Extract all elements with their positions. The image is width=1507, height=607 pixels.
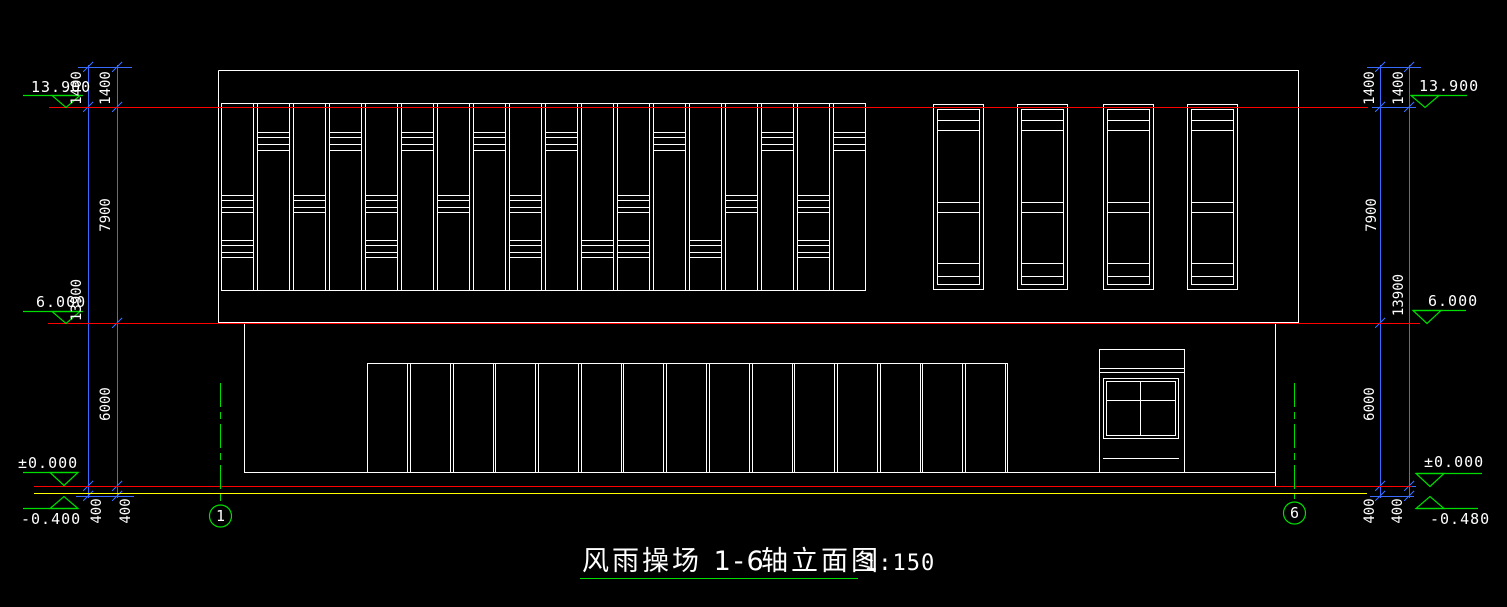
elevation-symbol-right-0000 xyxy=(1416,474,1482,487)
dim-extension-lines xyxy=(60,68,1421,497)
window-unit xyxy=(257,104,290,291)
axis-grid xyxy=(210,383,1306,527)
cad-elevation-canvas: 13.900 6.000 ±0.000 -0.400 13.900 6.000 … xyxy=(0,0,1507,607)
window-unit xyxy=(617,104,650,291)
entrance-door-assembly xyxy=(1099,350,1185,473)
glazing-panel xyxy=(582,364,622,473)
elevation-value: 13.900 xyxy=(1419,77,1479,95)
drawing-title: 风雨操场 1-6 轴立面图 1:150 xyxy=(580,546,935,579)
title-name: 风雨操场 1-6 xyxy=(582,546,767,577)
upper-window xyxy=(934,105,984,290)
elevation-symbol-left-0000 xyxy=(23,473,78,486)
window-unit xyxy=(689,104,722,291)
dim-value: 1400 xyxy=(98,71,114,105)
upper-window xyxy=(1188,105,1238,290)
glazing-panel xyxy=(795,364,835,473)
glazing-panel xyxy=(710,364,750,473)
axis-number-1: 1 xyxy=(216,507,225,525)
dim-value: 400 xyxy=(1390,498,1406,523)
dim-value: 1400 xyxy=(1362,71,1378,105)
glazing-panel xyxy=(923,364,963,473)
dim-value: 1400 xyxy=(69,71,85,105)
glazing-panel xyxy=(881,364,921,473)
window-unit xyxy=(725,104,758,291)
upper-window-band-frame xyxy=(221,104,865,291)
upper-window-band xyxy=(221,104,866,291)
elevation-value: ±0.000 xyxy=(18,454,78,472)
glazing-panel xyxy=(454,364,494,473)
lower-glazing-band-top xyxy=(367,363,1008,472)
glazing-panel xyxy=(411,364,451,473)
dim-value: 400 xyxy=(1362,498,1378,523)
window-unit xyxy=(293,104,326,291)
dim-value: 400 xyxy=(118,498,134,523)
elevation-symbol-right-6000 xyxy=(1413,311,1466,324)
glazing-panel xyxy=(966,364,1006,473)
elevation-labels: 13.900 6.000 ±0.000 -0.400 13.900 6.000 … xyxy=(18,77,1490,528)
lower-floor-outline xyxy=(244,323,1276,486)
glazing-panel xyxy=(667,364,707,473)
window-unit xyxy=(761,104,794,291)
upper-window xyxy=(1104,105,1154,290)
axis-number-6: 6 xyxy=(1290,504,1299,522)
window-unit xyxy=(365,104,398,291)
elevation-value: -0.400 xyxy=(21,510,81,528)
dim-value: 7900 xyxy=(98,198,114,232)
glazing-panel xyxy=(753,364,793,473)
window-unit xyxy=(833,104,866,291)
dimension-lines xyxy=(60,62,1421,501)
window-unit xyxy=(653,104,686,291)
glazing-panel xyxy=(368,364,408,473)
window-unit xyxy=(545,104,578,291)
dim-value: 7900 xyxy=(1364,198,1380,232)
datum-lines xyxy=(34,108,1420,494)
dim-value: 13900 xyxy=(1391,274,1407,316)
dim-value: 13900 xyxy=(69,279,85,321)
elevation-symbol-right-m0480 xyxy=(1416,497,1478,509)
elevation-value: 6.000 xyxy=(1428,292,1478,310)
window-unit xyxy=(221,104,254,291)
window-unit xyxy=(473,104,506,291)
dim-value: 1400 xyxy=(1391,71,1407,105)
upper-right-windows xyxy=(934,105,1238,290)
window-unit xyxy=(437,104,470,291)
window-unit xyxy=(401,104,434,291)
elevation-symbol-right-13900 xyxy=(1411,96,1467,108)
window-unit xyxy=(509,104,542,291)
dim-value: 6000 xyxy=(1362,387,1378,421)
elevation-value: -0.480 xyxy=(1430,510,1490,528)
dim-value: 6000 xyxy=(98,387,114,421)
glazing-panel xyxy=(539,364,579,473)
window-unit xyxy=(581,104,614,291)
window-unit xyxy=(797,104,830,291)
glazing-panel xyxy=(624,364,664,473)
title-scale: 1:150 xyxy=(864,551,935,576)
dimension-ticks xyxy=(83,62,1414,501)
lower-glazing-band xyxy=(368,364,1006,473)
elevation-value: ±0.000 xyxy=(1424,453,1484,471)
glazing-panel xyxy=(838,364,878,473)
glazing-panel xyxy=(496,364,536,473)
building-elevation xyxy=(218,71,1299,487)
elevation-symbol-left-m0400 xyxy=(23,497,78,509)
dimension-labels: 1400 1400 7900 13900 6000 400 400 1400 1… xyxy=(69,71,1407,524)
dim-value: 400 xyxy=(89,498,105,523)
upper-window xyxy=(1018,105,1068,290)
title-type: 轴立面图 xyxy=(761,546,881,577)
window-unit xyxy=(329,104,362,291)
